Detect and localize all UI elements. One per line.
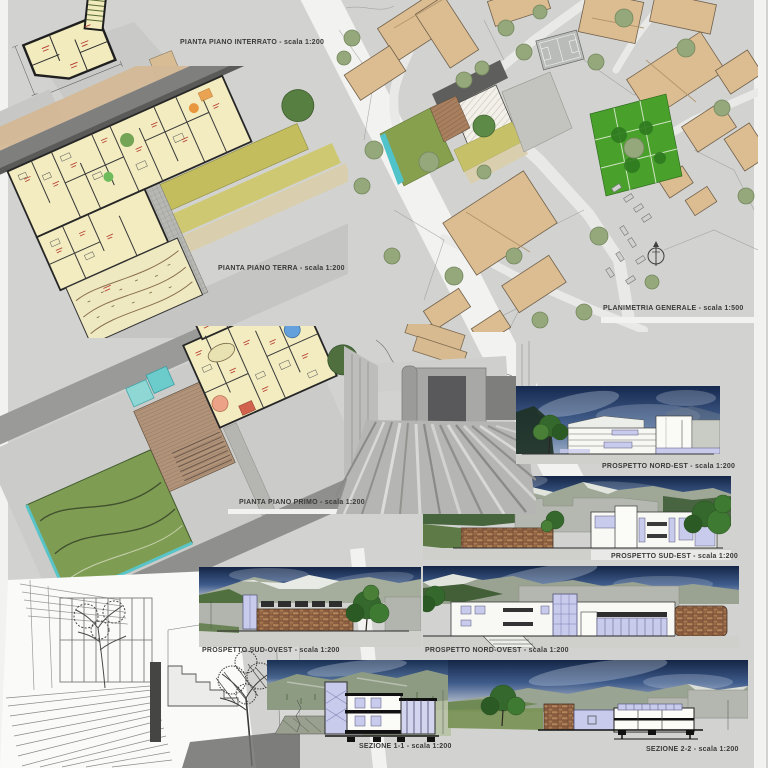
label-sezione-2-2: SEZIONE 2-2 - scala 1:200 [646,746,739,753]
section-1-1-drawing [267,660,451,746]
label-prospetto-sud-ovest: PROSPETTO SUD-OVEST - scala 1:200 [202,647,340,654]
ground-floor-plan-drawing [0,66,348,338]
label-pianta-primo: PIANTA PIANO PRIMO - scala 1:200 [239,499,365,506]
label-pianta-interrato: PIANTA PIANO INTERRATO - scala 1:200 [180,39,324,46]
section-2-2-drawing [448,660,748,744]
elevation-nord-est [516,386,720,464]
presentation-board: PIANTA PIANO INTERRATO - scala 1:200 PIA… [0,0,768,768]
label-pianta-terra: PIANTA PIANO TERRA - scala 1:200 [218,265,345,272]
label-prospetto-nord-est: PROSPETTO NORD-EST - scala 1:200 [602,463,735,470]
elevation-nord-ovest [423,566,739,648]
label-sezione-1-1: SEZIONE 1-1 - scala 1:200 [359,743,452,750]
site-plan-drawing [334,0,758,332]
label-prospetto-sud-est: PROSPETTO SUD-EST - scala 1:200 [611,553,738,560]
interior-perspective-sketch-center [336,324,536,514]
elevation-sud-ovest [199,567,421,647]
label-planimetria: PLANIMETRIA GENERALE - scala 1:500 [603,305,744,312]
planimetria-underline [601,317,757,323]
north-arrow-icon [648,241,664,266]
label-prospetto-nord-ovest: PROSPETTO NORD-OVEST - scala 1:200 [425,647,569,654]
parked-cars [606,184,652,285]
